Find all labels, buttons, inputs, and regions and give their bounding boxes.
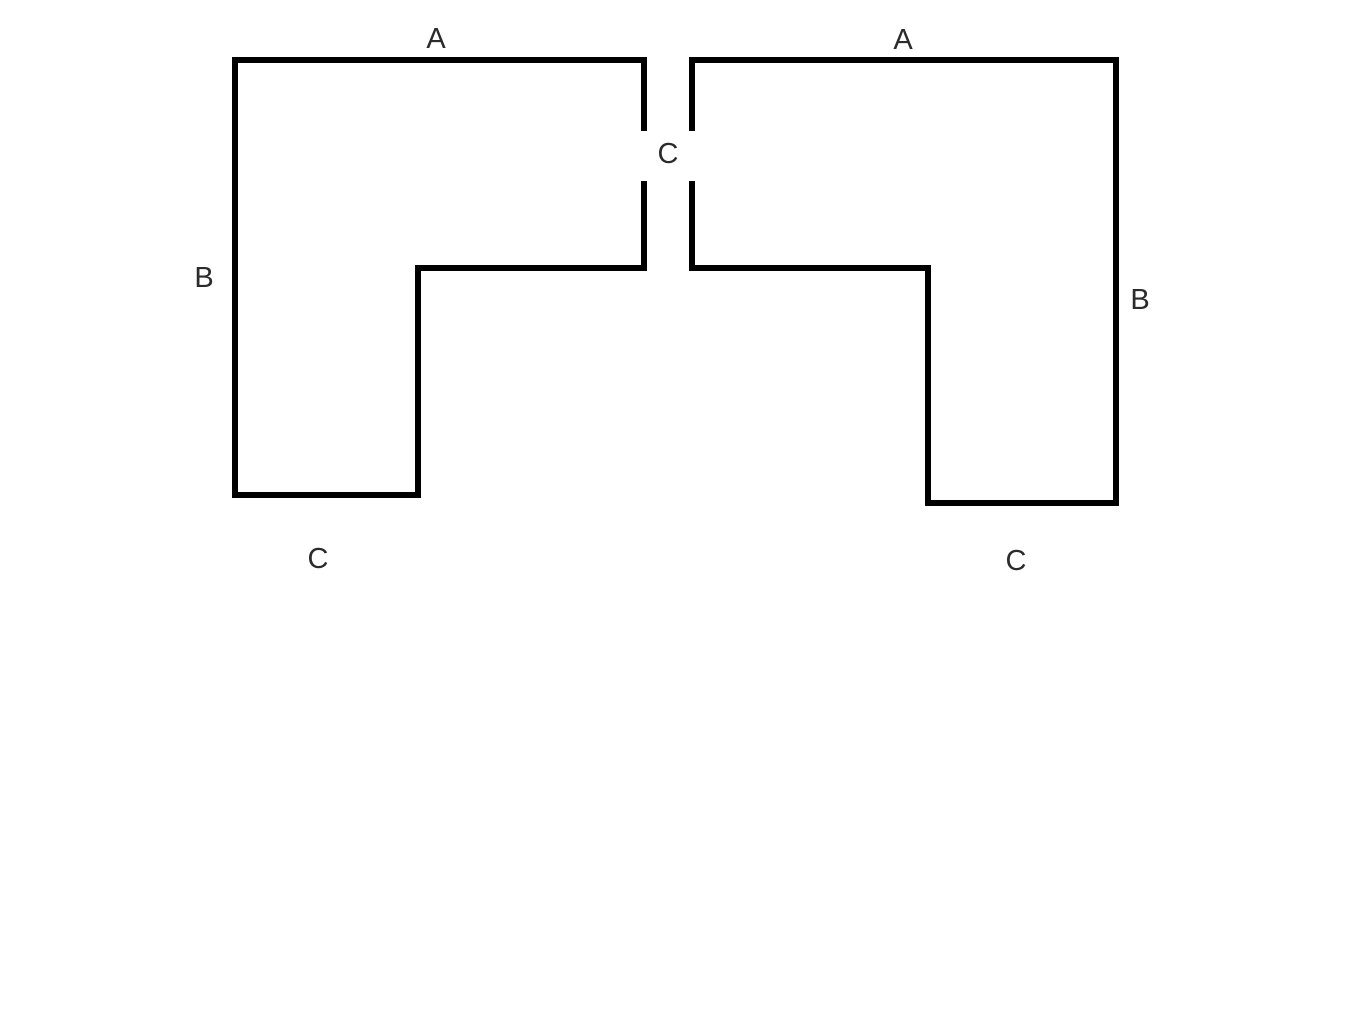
l-shapes-diagram: AABBCCC (0, 0, 1366, 1025)
left-l-shape-outline (235, 60, 644, 495)
right-l-shape-outline (692, 60, 1116, 503)
label-b-right: B (1130, 284, 1149, 316)
label-c-bottom-right: C (1006, 545, 1027, 577)
diagram-stage: AABBCCC (0, 0, 1366, 1025)
label-a-right: A (893, 24, 913, 56)
label-c-center: C (658, 138, 679, 170)
label-c-bottom-left: C (308, 543, 329, 575)
label-b-left: B (194, 262, 213, 294)
label-a-left: A (426, 23, 446, 55)
